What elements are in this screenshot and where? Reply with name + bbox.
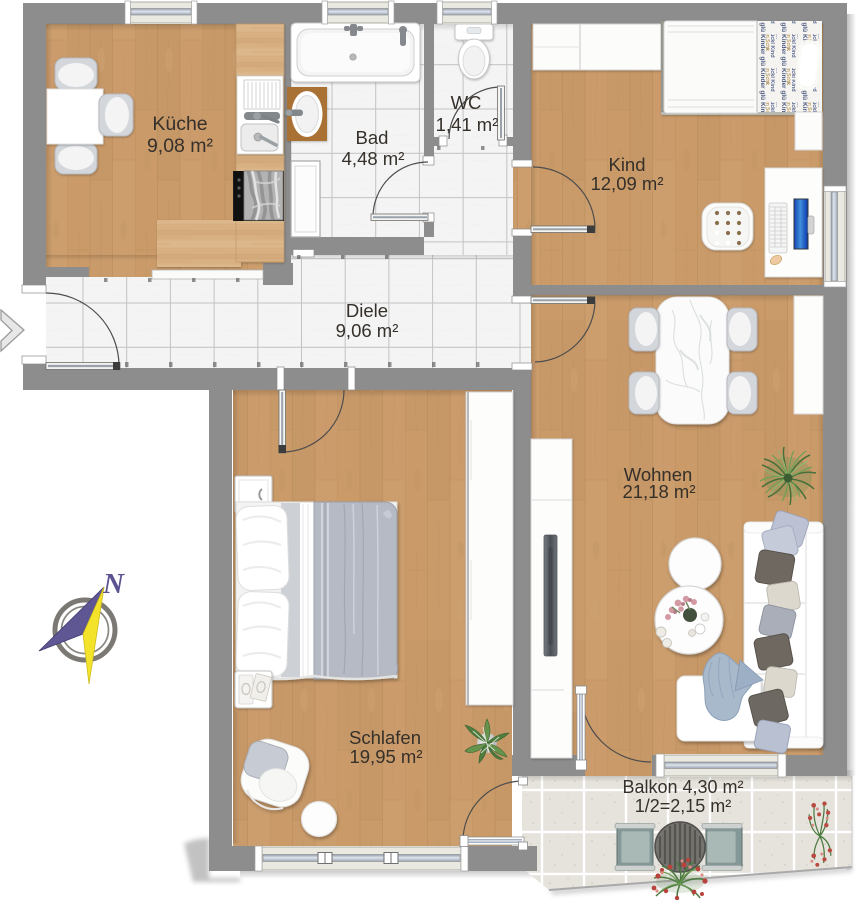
svg-text:Balkon 4,30 m²: Balkon 4,30 m² <box>622 777 743 797</box>
svg-text:4,48 m²: 4,48 m² <box>342 148 405 169</box>
svg-text:12,09 m²: 12,09 m² <box>590 173 663 194</box>
svg-text:Diele: Diele <box>346 300 388 321</box>
svg-text:9,08 m²: 9,08 m² <box>147 135 214 157</box>
svg-text:Kind: Kind <box>608 154 645 175</box>
svg-text:Bad: Bad <box>356 127 389 148</box>
svg-text:1,41 m²: 1,41 m² <box>436 114 499 135</box>
svg-text:Küche: Küche <box>152 113 207 135</box>
svg-text:WC: WC <box>451 92 482 113</box>
svg-text:9,06 m²: 9,06 m² <box>336 320 399 341</box>
svg-text:N: N <box>102 568 125 600</box>
svg-text:1/2=2,15 m²: 1/2=2,15 m² <box>635 796 732 816</box>
svg-text:Schlafen: Schlafen <box>349 727 421 748</box>
svg-text:21,18 m²: 21,18 m² <box>622 481 695 502</box>
svg-text:19,95 m²: 19,95 m² <box>349 746 422 767</box>
